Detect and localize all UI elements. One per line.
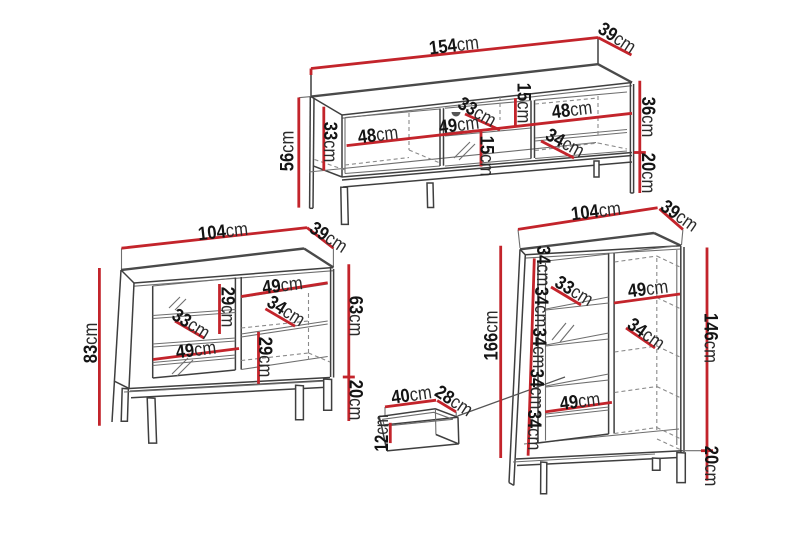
svg-text:34cm: 34cm bbox=[524, 410, 545, 451]
svg-text:15cm: 15cm bbox=[476, 136, 497, 177]
svg-text:63cm: 63cm bbox=[345, 296, 366, 337]
svg-text:36cm: 36cm bbox=[638, 97, 659, 138]
svg-text:34cm: 34cm bbox=[533, 246, 554, 287]
svg-text:20cm: 20cm bbox=[701, 446, 722, 487]
svg-text:29cm: 29cm bbox=[255, 337, 276, 378]
svg-text:15cm: 15cm bbox=[513, 83, 534, 124]
svg-text:34cm: 34cm bbox=[531, 287, 552, 328]
svg-text:34cm: 34cm bbox=[529, 328, 550, 369]
svg-text:83cm: 83cm bbox=[81, 323, 102, 364]
svg-text:33cm: 33cm bbox=[319, 122, 340, 163]
svg-text:146cm: 146cm bbox=[700, 313, 721, 363]
svg-text:29cm: 29cm bbox=[217, 287, 238, 328]
svg-text:56cm: 56cm bbox=[277, 131, 298, 172]
svg-text:12cm: 12cm bbox=[372, 415, 393, 452]
svg-text:20cm: 20cm bbox=[345, 380, 366, 421]
svg-text:34cm: 34cm bbox=[526, 369, 547, 410]
svg-text:20cm: 20cm bbox=[638, 153, 659, 194]
svg-text:166cm: 166cm bbox=[481, 311, 502, 361]
